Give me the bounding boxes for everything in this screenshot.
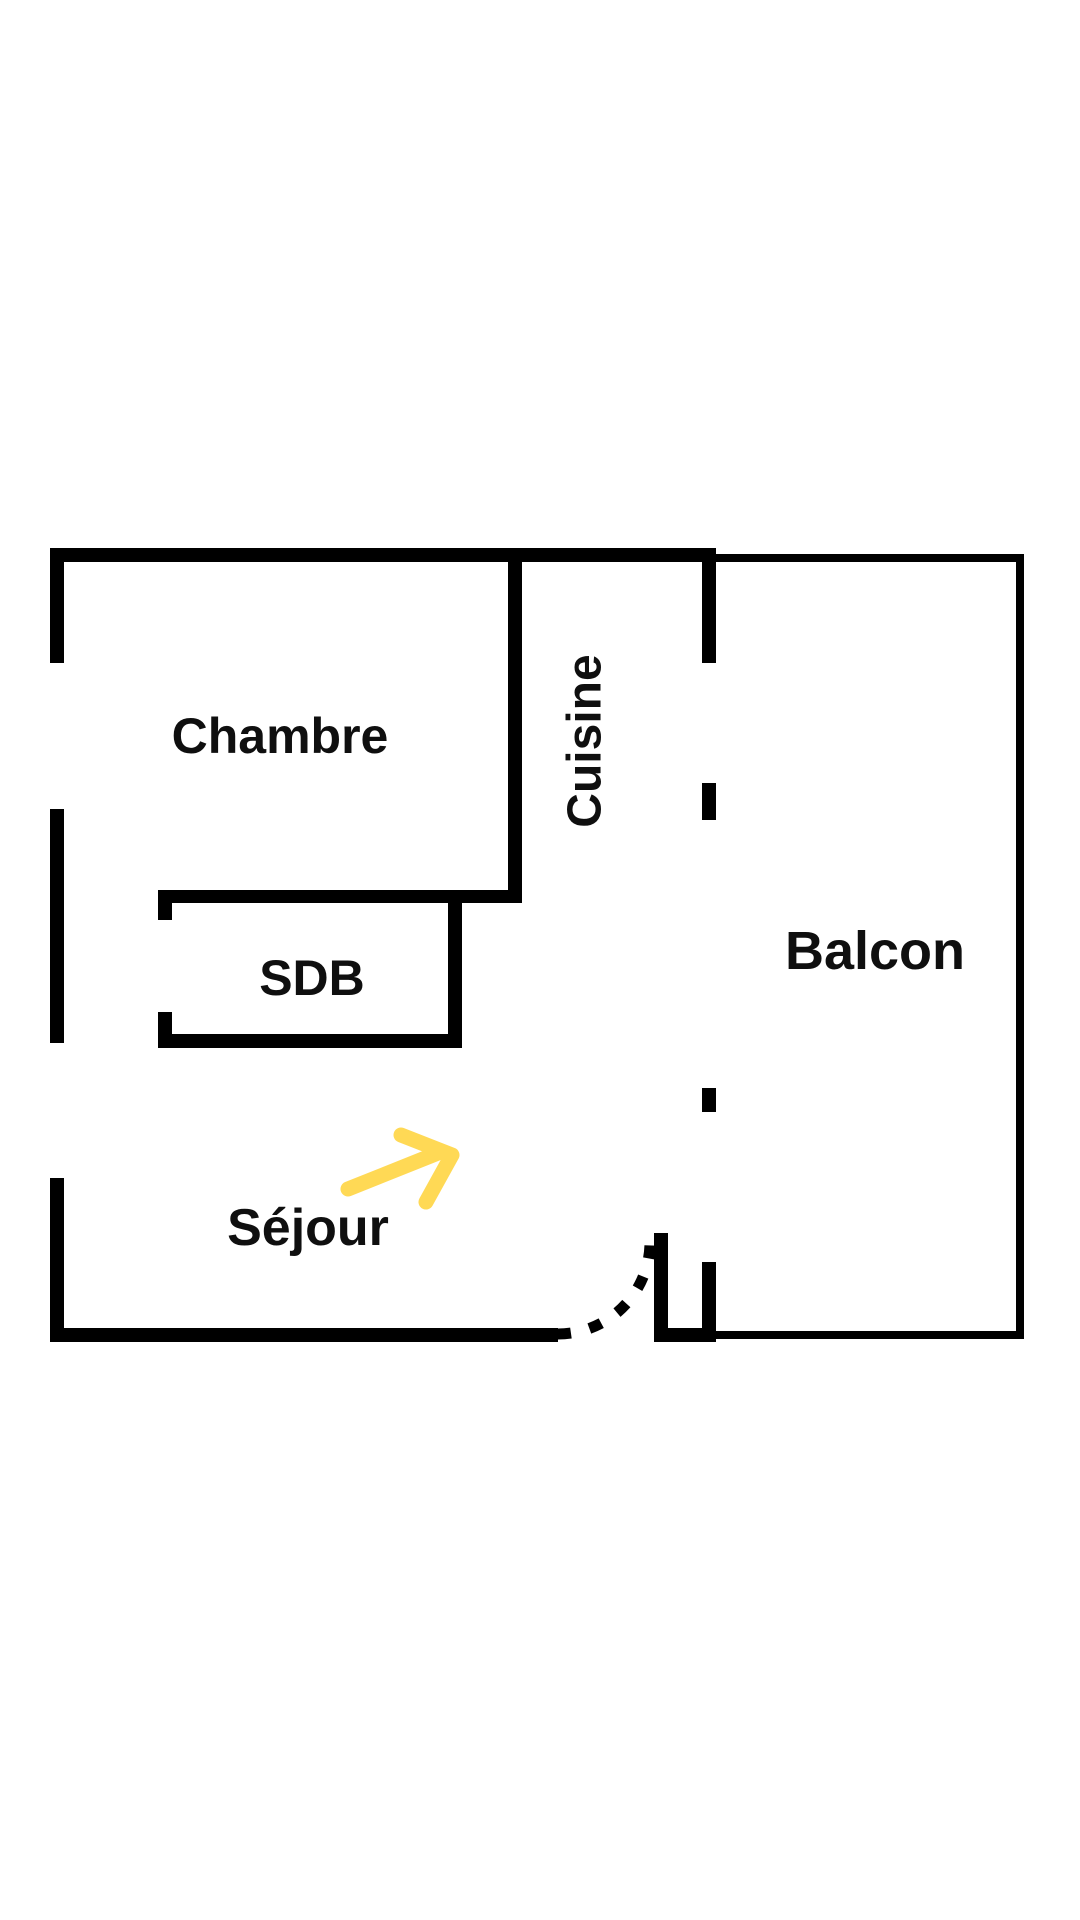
wall-sdb-top-left-stub bbox=[158, 890, 172, 920]
direction-arrow-shaft bbox=[348, 1153, 438, 1189]
wall-chambre-cuisine-divider bbox=[508, 562, 522, 903]
room-label-balcon: Balcon bbox=[785, 920, 965, 982]
floor-plan-page: Chambre Cuisine SDB Balcon Séjour bbox=[0, 0, 1080, 1920]
wall-left-segment-3 bbox=[50, 1178, 64, 1342]
room-label-cuisine: Cuisine bbox=[558, 654, 613, 827]
balcon-wall-top bbox=[716, 554, 1024, 562]
wall-balcon-side-segment-3 bbox=[702, 1088, 716, 1112]
room-label-sdb: SDB bbox=[259, 949, 365, 1007]
wall-balcon-side-segment-2 bbox=[702, 783, 716, 820]
door-swing-arc bbox=[558, 1242, 650, 1334]
direction-arrow bbox=[348, 1135, 452, 1202]
wall-sdb-bottom-left-stub bbox=[158, 1012, 172, 1048]
wall-sdb-top bbox=[158, 890, 522, 903]
balcon-wall-bottom bbox=[716, 1331, 1024, 1339]
balcon-wall-right bbox=[1016, 554, 1024, 1339]
room-label-sejour: Séjour bbox=[227, 1198, 389, 1258]
wall-left-segment-2 bbox=[50, 809, 64, 1043]
wall-bottom-left bbox=[50, 1328, 558, 1342]
wall-sdb-bottom bbox=[158, 1034, 462, 1048]
wall-sdb-right bbox=[448, 890, 462, 1048]
room-label-chambre: Chambre bbox=[172, 707, 389, 765]
wall-bottom-middle bbox=[654, 1328, 716, 1342]
wall-entrance-jamb bbox=[654, 1233, 668, 1342]
wall-left-segment-1 bbox=[50, 548, 64, 663]
wall-top bbox=[50, 548, 716, 562]
wall-balcon-side-segment-1 bbox=[702, 548, 716, 663]
